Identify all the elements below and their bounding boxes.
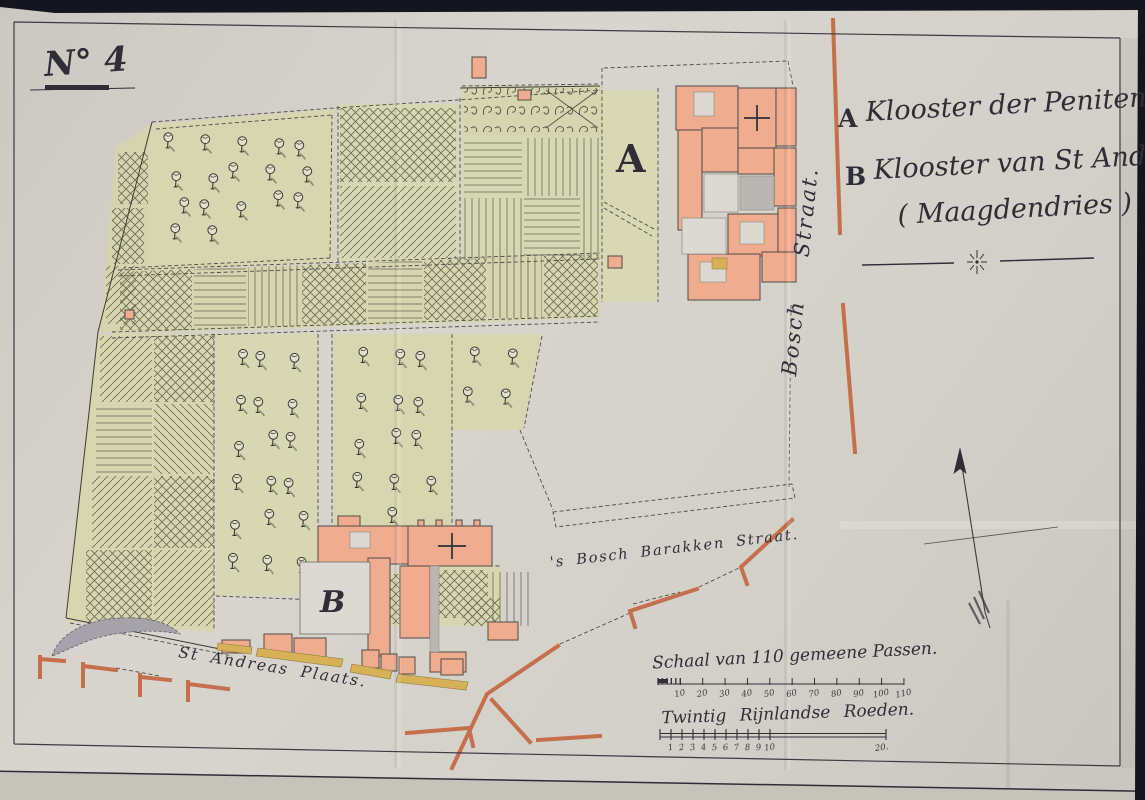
scale-tick-label: 20. bbox=[873, 742, 889, 754]
convent-b-courtyard-small bbox=[350, 532, 370, 548]
legend-key-a: A bbox=[837, 104, 858, 133]
convent-b-alley-shading bbox=[430, 566, 439, 652]
sheet-number: N° 4 bbox=[42, 39, 129, 85]
photographed-historical-map: N° 4 A Klooster der Penitenten B Klooste… bbox=[0, 0, 1145, 800]
scale-tick-label: 10 bbox=[764, 742, 777, 753]
building-marker-b: B bbox=[319, 585, 345, 620]
building-marker-a: A bbox=[615, 136, 646, 181]
legend-key-b: B bbox=[845, 162, 866, 191]
